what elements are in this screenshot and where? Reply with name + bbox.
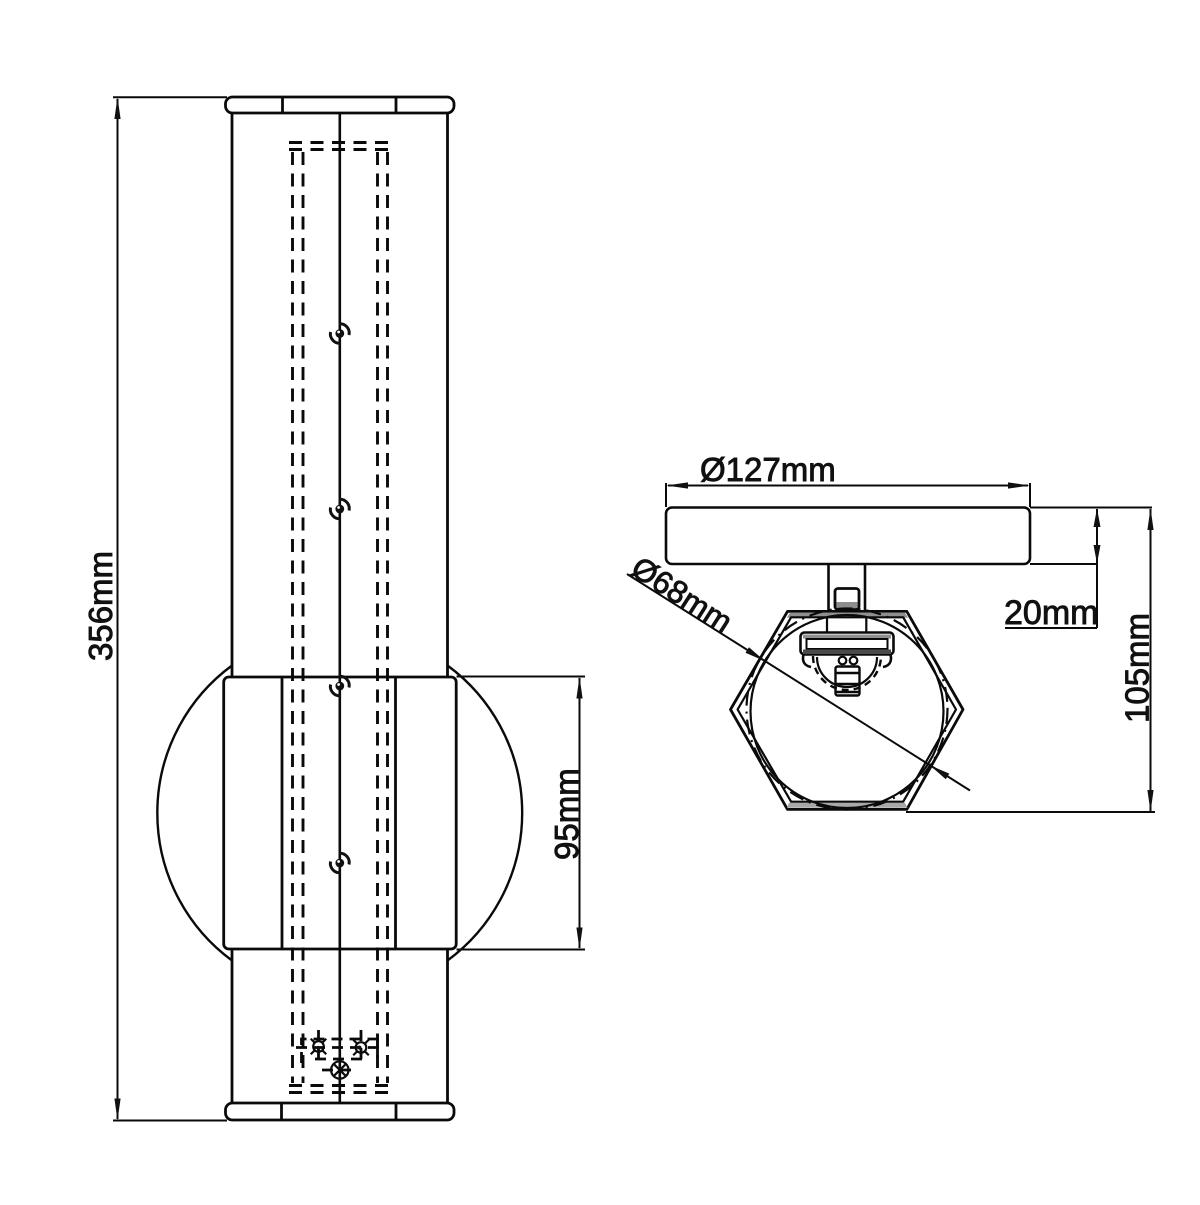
svg-text:Ø127mm: Ø127mm — [700, 451, 836, 488]
svg-text:105mm: 105mm — [1119, 613, 1156, 723]
svg-text:20mm: 20mm — [1004, 594, 1098, 632]
svg-text:356mm: 356mm — [82, 551, 119, 661]
svg-text:95mm: 95mm — [548, 768, 585, 860]
